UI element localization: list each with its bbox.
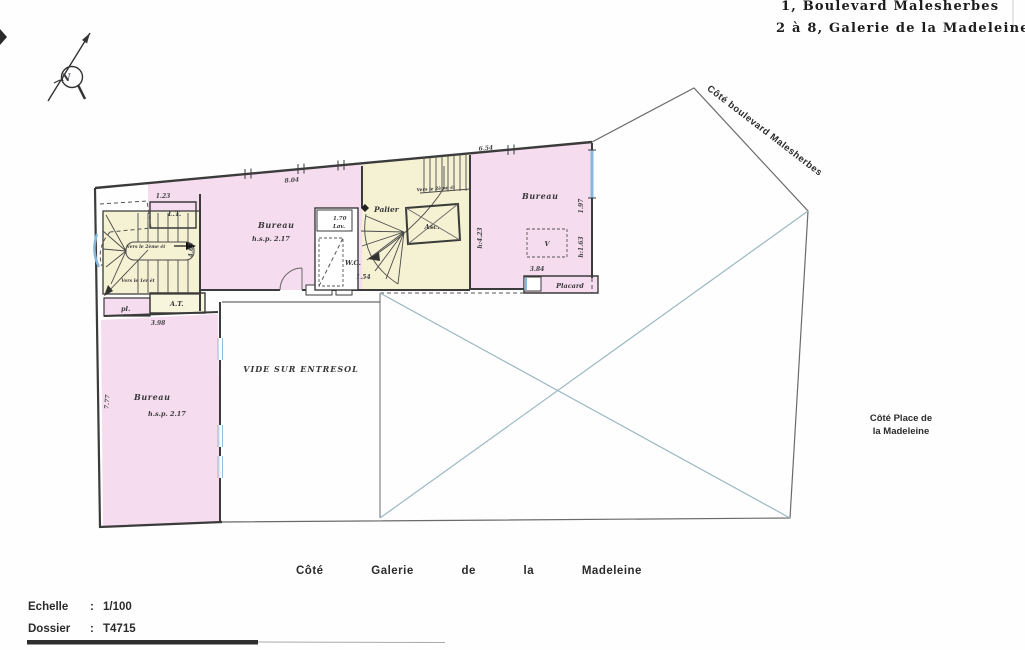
dim-3-84: 3.84 [530, 266, 545, 273]
dim-7-77: 7.77 [103, 393, 111, 409]
floor-plan-page: N 1, Boulevard Malesherbes 2 à 8, Galeri… [0, 0, 1025, 650]
dim-1-97: 1.97 [578, 198, 585, 213]
bottom-bar [27, 640, 258, 645]
address-line-1: 1, Boulevard Malesherbes [781, 0, 999, 14]
stair-note-down-main: Vers le 1er ét [121, 277, 155, 284]
room-label-lt: L.T. [167, 210, 181, 218]
scale-value: 1/100 [103, 601, 132, 613]
room-label-lavabo: Lav. [332, 224, 345, 230]
dim-h-4-23: h:4.23 [477, 227, 484, 248]
room-label-bureau-top: Bureau [257, 220, 294, 230]
room-height-bureau-top: h.s.p. 2.17 [252, 235, 290, 243]
caption-place-side-line2: la Madeleine [873, 426, 930, 437]
dossier-value: T4715 [103, 623, 136, 635]
room-label-at: A.T. [169, 300, 184, 308]
dossier-label: Dossier [28, 623, 71, 635]
caption-place-side-line1: Côté Place de [870, 413, 932, 424]
room-label-placard: Placard [555, 282, 584, 290]
scale-line: Echelle:1/100 [28, 601, 132, 613]
north-compass: N [48, 33, 90, 101]
dim-1-70: 1.70 [333, 216, 347, 222]
dim-h-1-63: h:1.63 [578, 236, 585, 257]
room-label-vide: VIDE SUR ENTRESOL [243, 364, 358, 374]
dossier-separator: : [90, 623, 94, 635]
compass-north-label: N [60, 73, 71, 84]
stair-note-up-main: Vers le 2ème ét [127, 243, 167, 250]
room-label-bureau-left: Bureau [133, 392, 170, 402]
north-arrowhead-icon [82, 33, 90, 44]
dim-1-23: 1.23 [156, 193, 171, 200]
room-label-pl: pl. [121, 305, 130, 313]
dim-1-54: 1.54 [356, 274, 371, 281]
dim-4-63: 4.63 [188, 243, 195, 258]
room-label-wc: W.C. [345, 259, 361, 267]
dim-8-04: 8.04 [284, 176, 299, 184]
dim-3-98: 3.98 [151, 320, 166, 327]
room-label-palier: Palier [373, 205, 400, 214]
dim-6-54: 6.54 [478, 144, 493, 152]
caption-galerie-side: Côté Galerie de la Madeleine [296, 565, 642, 577]
scale-label: Echelle [28, 601, 68, 613]
address-line-2: 2 à 8, Galerie de la Madeleine [776, 21, 1025, 36]
dossier-line: Dossier:T4715 [28, 623, 136, 635]
room-height-bureau-left: h.s.p. 2.17 [148, 410, 186, 418]
scale-separator: : [90, 601, 94, 613]
room-label-ascenseur: Asc. [424, 223, 440, 231]
room-label-bureau-right: Bureau [521, 191, 558, 201]
floor-plan-svg: N 1, Boulevard Malesherbes 2 à 8, Galeri… [0, 0, 1025, 650]
